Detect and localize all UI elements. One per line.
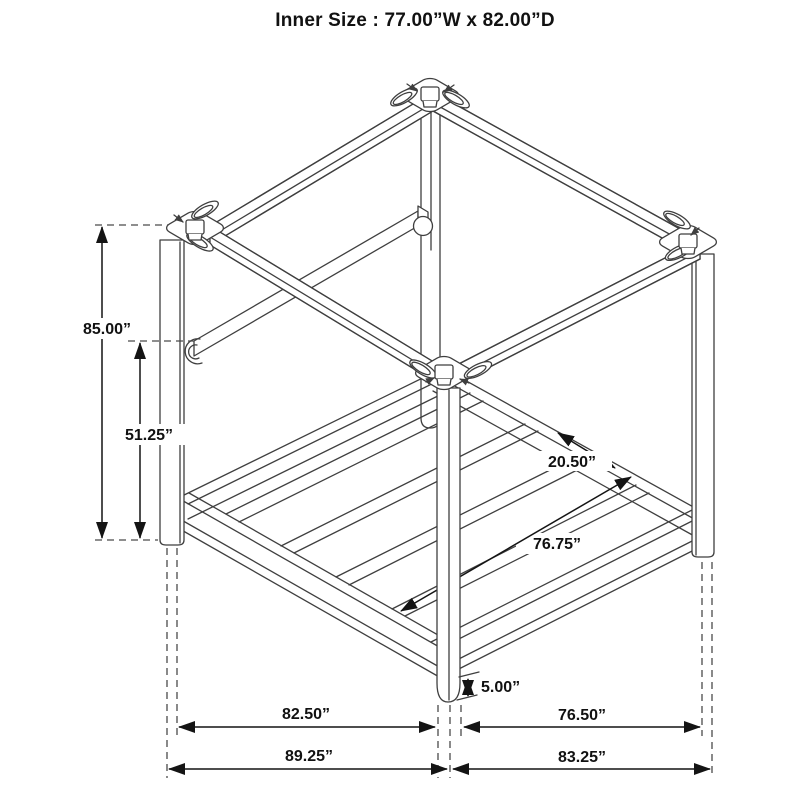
dimension-diagram: Inner Size : 77.00”W x 82.00”D	[0, 0, 800, 800]
label-depth-inner: 76.50”	[558, 707, 606, 724]
dim-ground-clearance: 5.00”	[457, 672, 520, 700]
label-overall-height: 85.00”	[83, 321, 131, 338]
canopy-frame	[162, 76, 720, 392]
corner-plates	[162, 76, 720, 392]
dim-slat-spacing: 20.50”	[532, 433, 615, 471]
dim-width-overall: 89.25”	[169, 748, 447, 769]
label-platform-inner-depth: 76.75”	[533, 536, 581, 553]
extension-lines	[95, 225, 712, 778]
label-slat-spacing: 20.50”	[548, 454, 596, 471]
post-caps	[186, 87, 697, 385]
label-ground-clearance: 5.00”	[481, 679, 520, 696]
left-leg	[160, 240, 184, 545]
label-rail-height: 51.25”	[125, 427, 173, 444]
label-width-overall: 89.25”	[285, 748, 333, 765]
dim-width-inner: 82.50”	[179, 706, 435, 727]
bed-frame-drawing: 76.75” 20.50”	[0, 0, 800, 800]
dim-overall-height: 85.00”	[71, 227, 143, 538]
dim-platform-inner-depth: 76.75”	[401, 477, 631, 611]
dim-depth-inner: 76.50”	[464, 707, 700, 727]
right-leg	[692, 254, 714, 557]
label-depth-overall: 83.25”	[558, 749, 606, 766]
dim-depth-overall: 83.25”	[453, 749, 710, 769]
front-leg	[437, 388, 460, 702]
label-width-inner: 82.50”	[282, 706, 330, 723]
